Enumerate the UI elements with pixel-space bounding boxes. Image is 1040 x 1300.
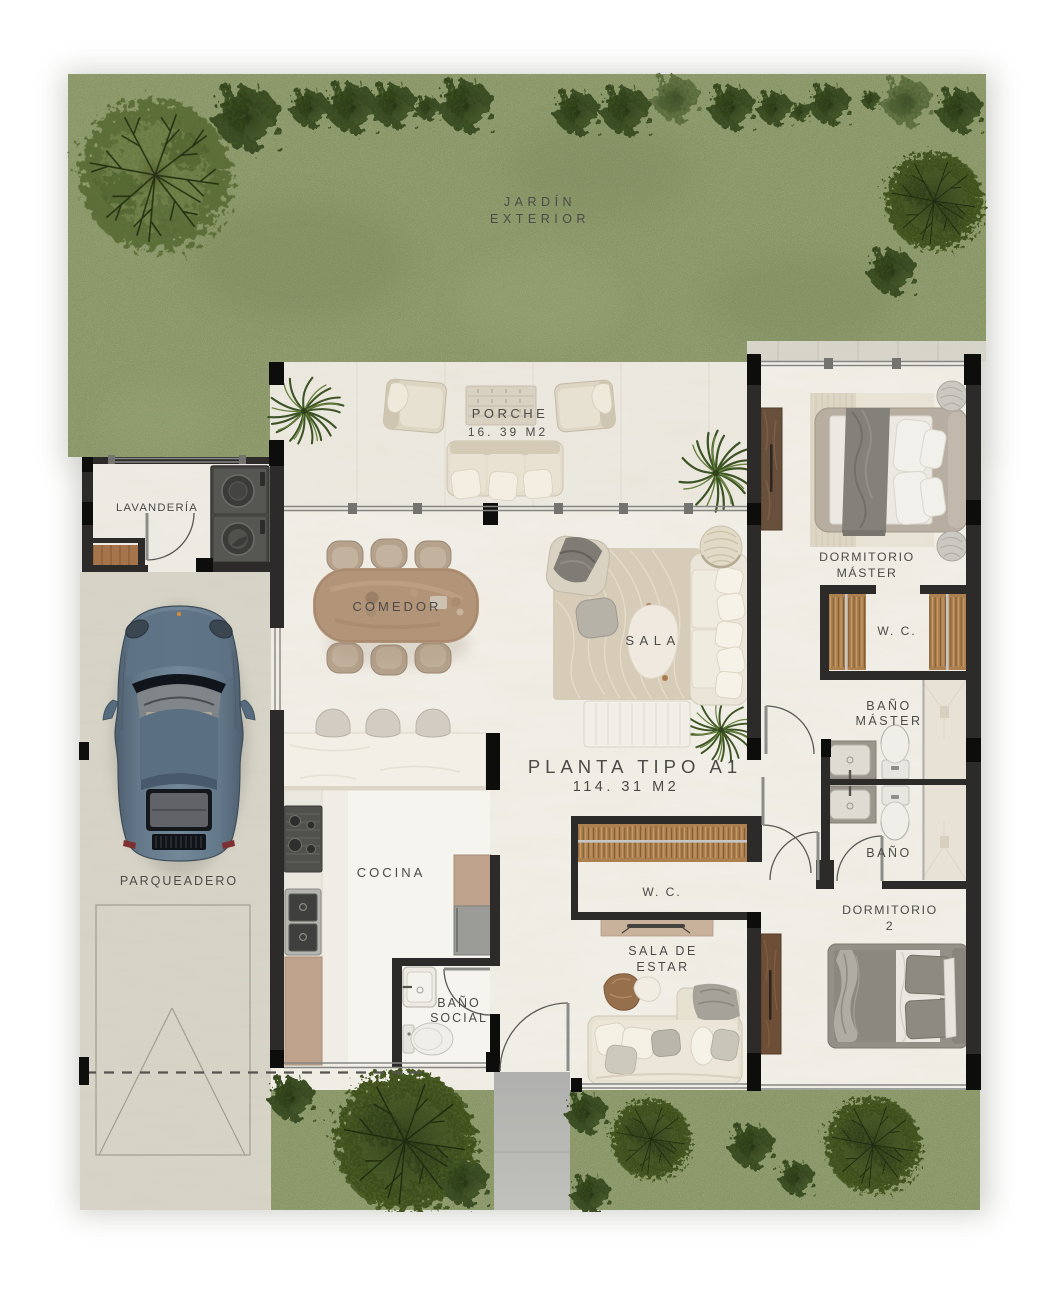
- svg-text:SOCIAL: SOCIAL: [430, 1011, 488, 1025]
- svg-text:SALA: SALA: [625, 633, 680, 648]
- svg-text:LAVANDERÍA: LAVANDERÍA: [116, 501, 198, 514]
- svg-text:PLANTA TIPO A1: PLANTA TIPO A1: [528, 756, 742, 777]
- svg-text:DORMITORIO: DORMITORIO: [842, 903, 938, 917]
- svg-text:MÁSTER: MÁSTER: [855, 713, 922, 728]
- svg-text:PORCHE: PORCHE: [472, 406, 549, 421]
- svg-text:BAÑO: BAÑO: [437, 996, 480, 1010]
- svg-text:JARDÍN: JARDÍN: [504, 194, 576, 209]
- svg-text:EXTERIOR: EXTERIOR: [490, 212, 590, 226]
- svg-text:16. 39 M2: 16. 39 M2: [468, 425, 548, 439]
- svg-text:PARQUEADERO: PARQUEADERO: [120, 874, 238, 888]
- svg-text:COCINA: COCINA: [357, 865, 426, 880]
- svg-text:COMEDOR: COMEDOR: [353, 599, 442, 614]
- svg-text:BAÑO: BAÑO: [866, 846, 911, 860]
- svg-text:DORMITORIO: DORMITORIO: [819, 550, 915, 564]
- svg-text:2: 2: [886, 919, 894, 933]
- svg-text:W. C.: W. C.: [642, 885, 681, 899]
- svg-text:ESTAR: ESTAR: [636, 960, 689, 974]
- svg-text:SALA DE: SALA DE: [628, 944, 698, 958]
- svg-text:W. C.: W. C.: [877, 624, 916, 638]
- svg-text:BAÑO: BAÑO: [866, 699, 911, 713]
- svg-text:114. 31 M2: 114. 31 M2: [573, 779, 679, 795]
- svg-text:MÁSTER: MÁSTER: [837, 565, 898, 580]
